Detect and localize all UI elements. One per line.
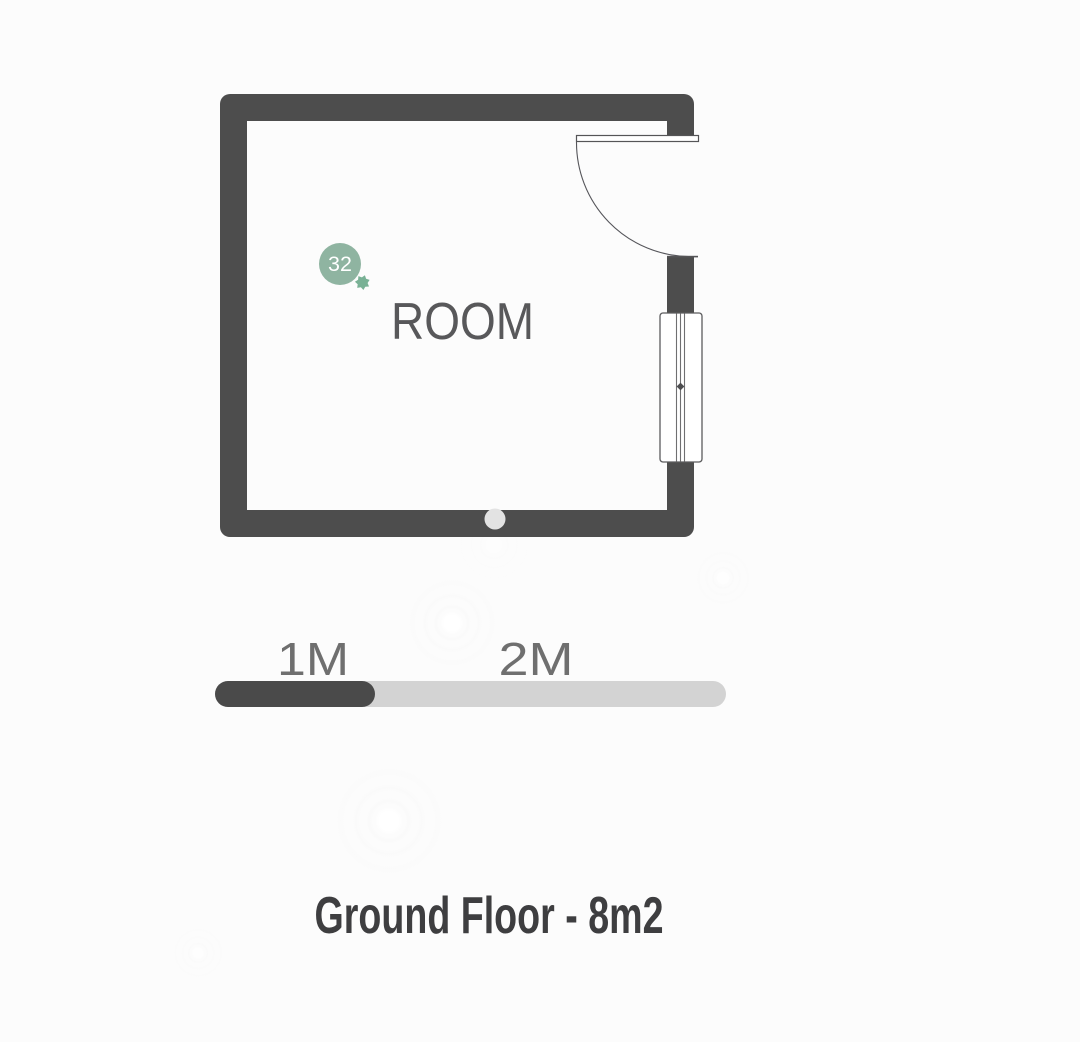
svg-text:ROOM: ROOM xyxy=(391,293,534,351)
svg-text:2M: 2M xyxy=(499,633,574,685)
svg-text:Ground Floor - 8m2: Ground Floor - 8m2 xyxy=(315,887,664,945)
svg-text:32: 32 xyxy=(328,252,352,276)
svg-text:1M: 1M xyxy=(277,633,349,685)
